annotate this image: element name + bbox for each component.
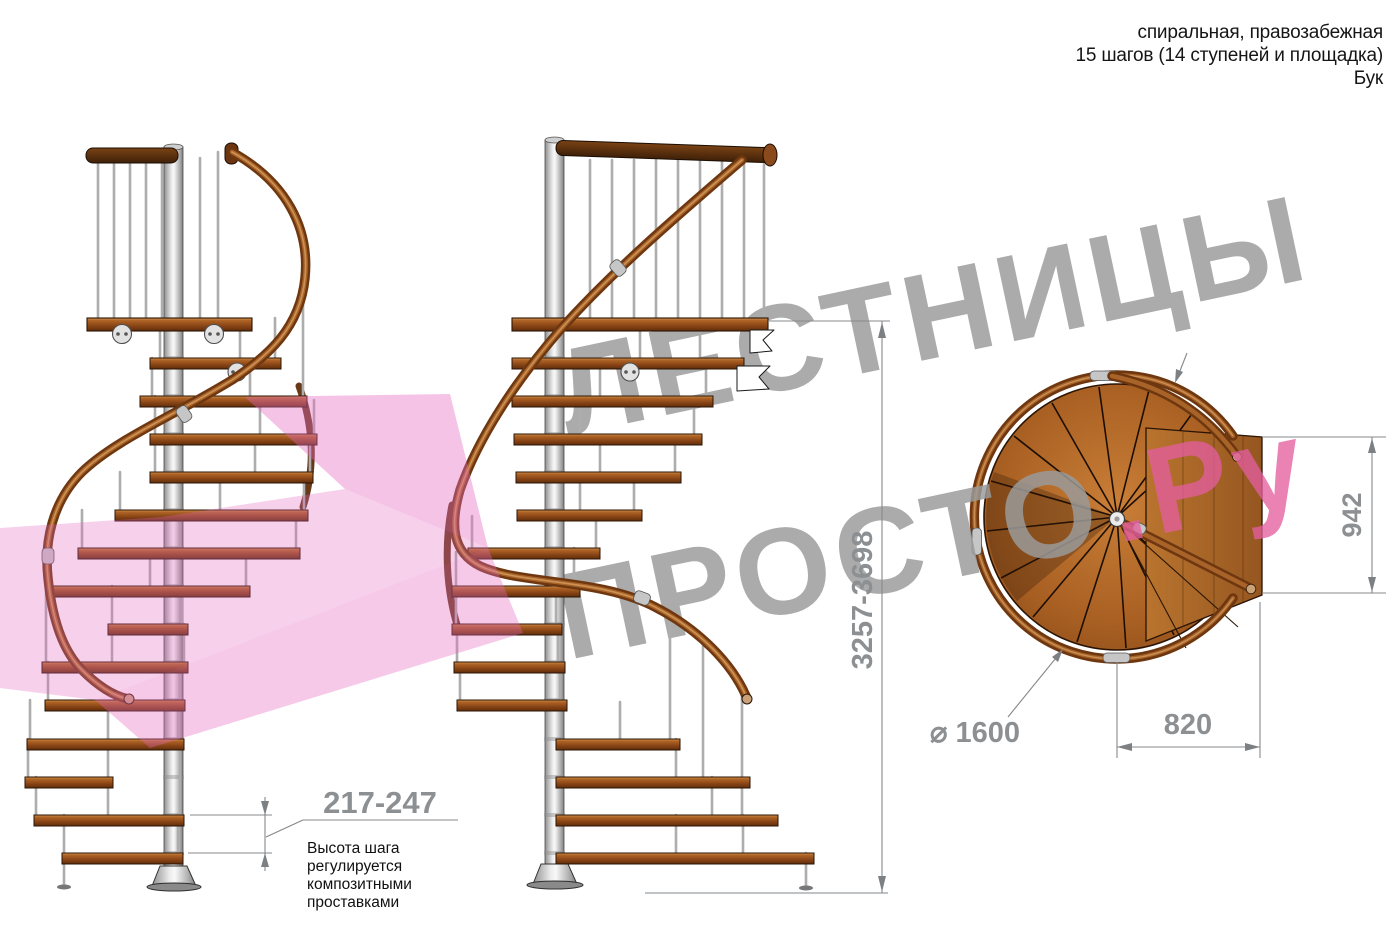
left-landing-platform	[87, 318, 252, 331]
middle-fitting-medallion	[621, 363, 639, 381]
title-block: спиральная, правозабежная 15 шагов (14 с…	[1076, 21, 1384, 90]
watermark-arrow	[0, 394, 523, 748]
note-line-4: проставками	[307, 894, 412, 912]
total-height-label: 3257-3698	[847, 531, 879, 670]
staircase-type-line: спиральная, правозабежная	[1076, 21, 1384, 44]
technical-drawing-canvas: ЛЕСТНИЦЫ ПРОСТО.Ру	[0, 0, 1400, 939]
drawing-page: { "header": { "line1": "спиральная, прав…	[0, 0, 1400, 939]
note-line-1: Высота шага	[307, 840, 412, 858]
material-line: Бук	[1076, 67, 1384, 90]
landing-depth-label: 820	[1164, 709, 1212, 741]
landing-width-label: 942	[1337, 492, 1367, 537]
step-height-label: 217-247	[323, 785, 437, 820]
left-baluster-foot	[57, 885, 71, 890]
note-line-2: регулируется	[307, 858, 412, 876]
step-height-note: Высота шага регулируется композитными пр…	[307, 840, 412, 912]
ring-connector-bottom	[1103, 653, 1130, 663]
steps-count-line: 15 шагов (14 ступеней и площадка)	[1076, 44, 1384, 67]
dim-diameter: ⌀ 1600	[930, 649, 1063, 749]
diameter-label: ⌀ 1600	[930, 717, 1020, 749]
left-top-rail	[86, 143, 238, 164]
note-line-3: композитными	[307, 876, 412, 894]
middle-landing-platform	[512, 318, 768, 331]
plan-leader-arrow	[1175, 353, 1187, 383]
middle-baluster-foot	[799, 886, 813, 891]
